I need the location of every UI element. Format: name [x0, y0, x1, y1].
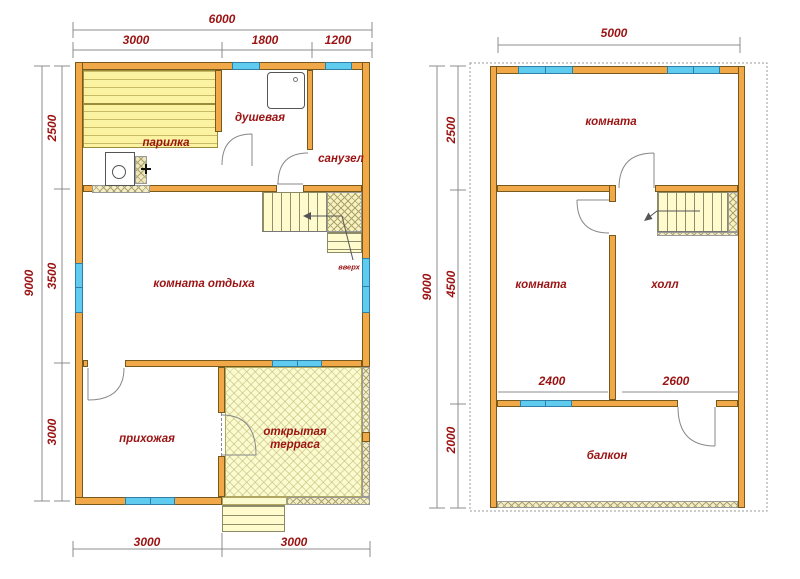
dim-label: 3000 [281, 535, 308, 549]
stairs-down-arrowhead [644, 213, 653, 222]
room-label-hall: холл [651, 279, 678, 291]
door-room-top [619, 153, 654, 188]
dim-label: 3000 [134, 535, 161, 549]
dim-label: 2600 [663, 374, 690, 388]
door-hallway [88, 368, 124, 400]
room-label-shower: душевая [235, 112, 285, 124]
dim-label: 1800 [252, 33, 279, 47]
room-label-room-top: комната [585, 116, 636, 128]
stairs-up-arrowhead [303, 212, 311, 220]
dim-label: 3000 [123, 33, 150, 47]
dim-label: 2500 [45, 115, 59, 142]
room-label-balcony: балкон [587, 450, 628, 462]
linework-overlay [0, 0, 800, 579]
room-label-hallway: прихожая [119, 433, 175, 445]
dim-label: 3000 [45, 419, 59, 446]
dim-label: 2000 [444, 427, 458, 454]
door-terrace [222, 415, 256, 455]
dimension-line [73, 533, 370, 557]
dim-label: 3500 [45, 263, 59, 290]
dim-label: 9000 [22, 270, 36, 297]
room-label-lounge: комната отдыха [153, 278, 254, 290]
door-room-mid [577, 200, 609, 233]
door-wc [277, 153, 308, 184]
stairs-down-arrow [648, 211, 700, 218]
dim-label: 1200 [325, 33, 352, 47]
floor-plan-canvas: 6000 3000 1800 1200 9000 2500 3500 3000 … [0, 0, 800, 579]
stairs-up-label: вверх [338, 263, 360, 272]
door-balcony [678, 407, 715, 446]
dim-label: 4500 [444, 271, 458, 298]
room-label-room-mid: комната [515, 279, 566, 291]
room-label-sauna: парилка [143, 137, 190, 149]
room-label-terrace: терраса [270, 439, 320, 451]
dim-label: 2400 [539, 374, 566, 388]
dim-label: 5000 [601, 26, 628, 40]
dim-label: 6000 [209, 12, 236, 26]
room-label-wc: санузел [318, 153, 364, 165]
door-shower [222, 134, 252, 166]
stairs-up-arrow [307, 216, 353, 260]
dim-label: 9000 [420, 274, 434, 301]
dim-label: 2500 [444, 117, 458, 144]
room-label-terrace: открытая [263, 426, 326, 438]
